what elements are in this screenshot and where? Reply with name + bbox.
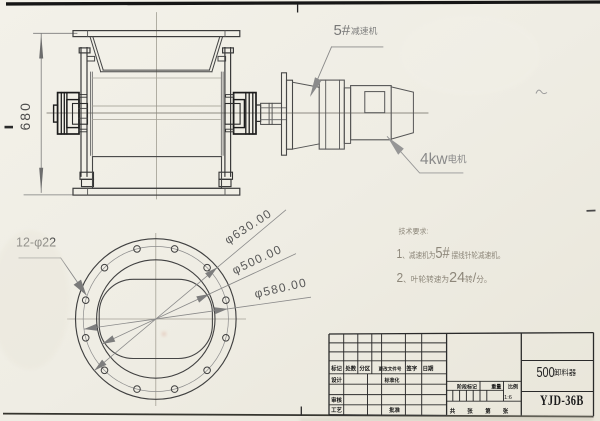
svg-text:更改文件号: 更改文件号	[379, 366, 402, 373]
svg-text:张: 张	[503, 407, 509, 415]
svg-text:4kw: 4kw	[420, 151, 448, 168]
svg-text:电机: 电机	[448, 154, 468, 166]
svg-text:工艺: 工艺	[331, 406, 342, 414]
svg-text:日期: 日期	[423, 365, 434, 373]
svg-text:5#: 5#	[334, 22, 351, 39]
svg-text:第: 第	[485, 407, 491, 415]
svg-text:签字: 签字	[405, 365, 417, 373]
svg-text:设计: 设计	[331, 376, 342, 384]
svg-text:阶段标记: 阶段标记	[457, 383, 477, 390]
svg-text:处数: 处数	[344, 365, 356, 373]
svg-text:YJD-36B: YJD-36B	[540, 393, 584, 409]
svg-text:500: 500	[537, 363, 555, 380]
svg-text:减速机: 减速机	[351, 25, 378, 36]
svg-text:卸料器: 卸料器	[554, 368, 577, 377]
svg-text:技术要求:: 技术要求:	[399, 227, 429, 236]
svg-text:共: 共	[450, 407, 456, 415]
svg-text:标准化: 标准化	[383, 377, 399, 384]
svg-text:分区: 分区	[359, 365, 370, 373]
svg-text:批准: 批准	[389, 406, 400, 414]
svg-text:标记: 标记	[330, 365, 342, 373]
svg-text:680: 680	[17, 101, 33, 130]
svg-text:张: 张	[467, 407, 473, 415]
svg-text:比例: 比例	[508, 383, 518, 390]
svg-text:重量: 重量	[491, 383, 501, 390]
svg-text:审核: 审核	[331, 396, 342, 404]
svg-text:1:6: 1:6	[504, 395, 512, 401]
